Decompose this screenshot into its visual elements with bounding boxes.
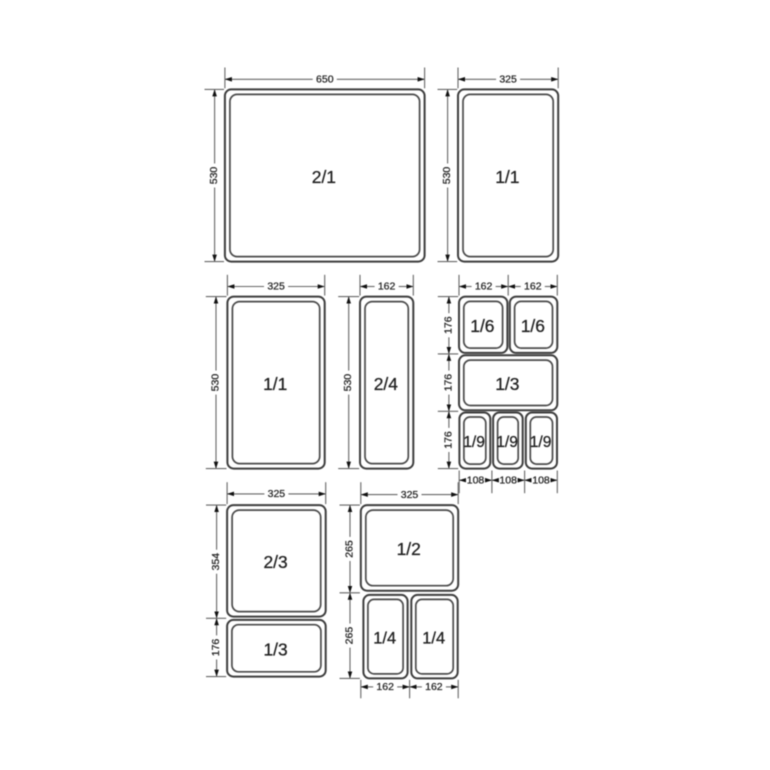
svg-text:1/1: 1/1: [263, 374, 287, 394]
svg-text:325: 325: [499, 74, 517, 86]
svg-text:1/4: 1/4: [422, 630, 445, 648]
svg-text:162: 162: [475, 281, 493, 293]
svg-text:530: 530: [210, 374, 222, 392]
svg-text:108: 108: [467, 474, 485, 486]
svg-text:162: 162: [378, 281, 396, 293]
svg-text:1/3: 1/3: [264, 640, 288, 660]
svg-text:530: 530: [208, 167, 220, 185]
svg-text:108: 108: [499, 474, 517, 486]
svg-text:325: 325: [268, 488, 286, 500]
svg-text:162: 162: [524, 281, 542, 293]
svg-text:2/3: 2/3: [264, 552, 288, 572]
svg-text:325: 325: [267, 281, 285, 293]
svg-text:265: 265: [344, 540, 356, 558]
svg-text:2/4: 2/4: [374, 374, 399, 394]
svg-text:1/4: 1/4: [373, 630, 396, 648]
svg-text:265: 265: [344, 627, 356, 645]
svg-text:1/2: 1/2: [397, 539, 421, 559]
svg-text:325: 325: [401, 489, 419, 501]
svg-text:162: 162: [425, 681, 443, 693]
svg-text:1/9: 1/9: [463, 434, 485, 451]
svg-text:1/9: 1/9: [530, 434, 552, 451]
svg-text:176: 176: [442, 316, 454, 334]
svg-text:354: 354: [210, 553, 222, 571]
svg-text:176: 176: [442, 374, 454, 392]
svg-text:1/3: 1/3: [495, 374, 519, 394]
svg-text:1/6: 1/6: [521, 316, 545, 336]
svg-text:1/9: 1/9: [496, 434, 518, 451]
svg-text:162: 162: [376, 681, 394, 693]
svg-text:1/1: 1/1: [495, 167, 519, 187]
svg-text:530: 530: [342, 374, 354, 392]
svg-text:176: 176: [210, 639, 222, 657]
svg-text:530: 530: [441, 167, 453, 185]
svg-text:650: 650: [316, 74, 334, 86]
svg-text:2/1: 2/1: [312, 167, 336, 187]
svg-text:108: 108: [532, 474, 550, 486]
svg-text:1/6: 1/6: [470, 316, 494, 336]
svg-text:176: 176: [442, 431, 454, 449]
